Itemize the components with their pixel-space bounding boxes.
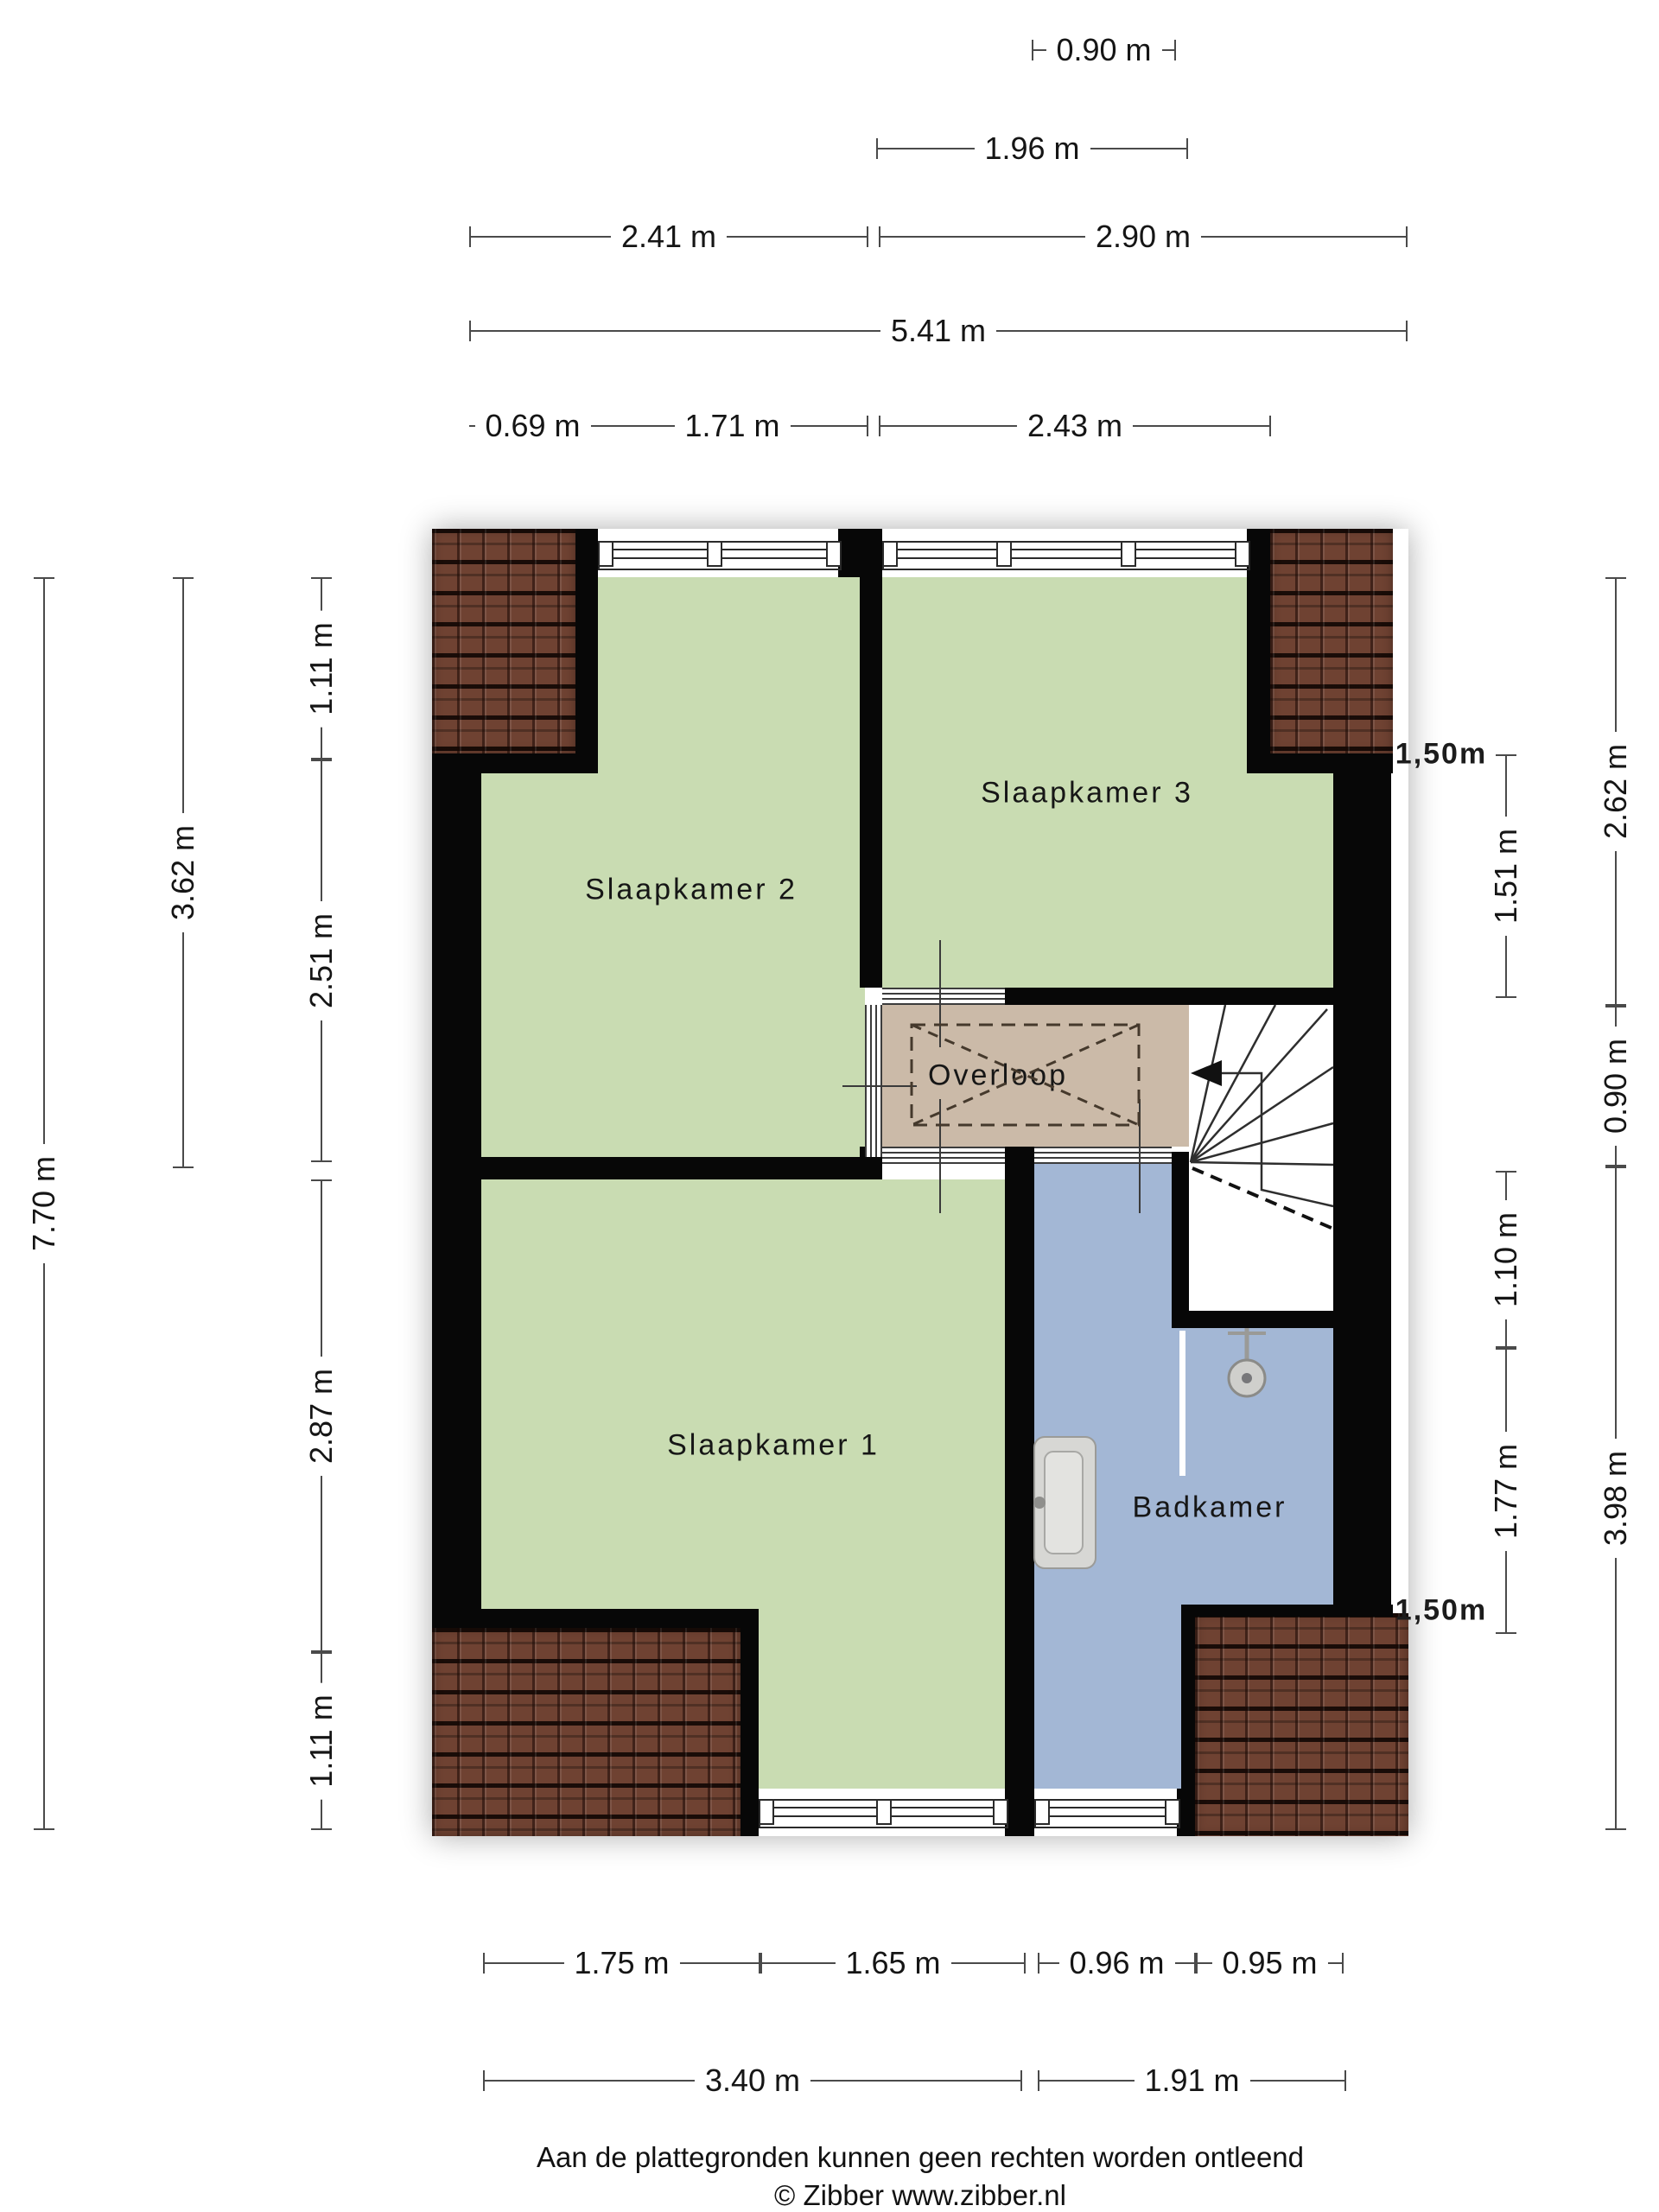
wall-segment [741,1609,759,1836]
dimension-label: 1.91 m [1134,2061,1249,2101]
dimension-label: 1.10 m [1486,1199,1526,1319]
window-mullion [993,1799,1008,1825]
dimension-label: 1.77 m [1486,1431,1526,1550]
wall-segment [432,1609,759,1628]
dimension-tick [1496,754,1516,756]
dimension-tick [1020,2070,1022,2091]
dimension-horizontal: 2.90 m [879,236,1408,238]
dimension-tick [173,577,194,579]
dimension-label: 2.62 m [1596,732,1636,851]
door-tick [1139,1099,1141,1213]
dimension-tick [1496,1171,1516,1173]
room-label-slaapkamer-2: Slaapkamer 2 [585,874,798,907]
dimension-tick [1406,321,1408,341]
wall-segment [1247,529,1270,773]
room-badkamer [1034,1328,1333,1613]
dimension-label: 1.71 m [674,406,790,446]
dimension-label: 2.51 m [302,901,341,1020]
dimension-vertical: 1.51 m [1505,754,1507,998]
wall-segment [575,529,598,773]
dimension-label: 3.62 m [163,813,203,932]
dimension-tick [1496,1632,1516,1634]
dimension-label: 0.69 m [474,406,590,446]
wall-segment [1195,1605,1393,1617]
window-mullion [598,541,613,567]
dimension-label: 3.98 m [1596,1439,1636,1558]
dimension-horizontal: 2.43 m [879,425,1271,427]
window-mullion [1034,1799,1050,1825]
dimension-label: 2.43 m [1017,406,1133,446]
dimension-horizontal: 0.96 m [1038,1962,1196,1964]
dimension-tick [1269,416,1271,436]
dimension-label: 2.87 m [302,1356,341,1475]
room-trap [1189,1005,1333,1311]
dimension-tick [879,226,880,247]
window-icon [759,1799,1008,1828]
dimension-tick [34,577,54,579]
dimension-label: 0.90 m [1046,30,1161,70]
dimension-label: 1.51 m [1486,817,1526,936]
dimension-label: 1.96 m [974,129,1090,168]
roof-tiles [432,529,575,753]
dimension-tick [867,416,868,436]
dimension-tick [1406,226,1408,247]
wall-segment [838,529,882,577]
dimension-vertical: 2.51 m [321,760,322,1162]
floorplan-page: 0.90 m1.96 m2.41 m2.90 m5.41 m0.69 m1.71… [0,0,1659,2212]
dimension-label: 0.96 m [1058,1943,1174,1983]
dimension-tick [1605,1006,1626,1007]
dimension-horizontal: 0.90 m [1032,49,1176,51]
knee-wall-height-label: 1,50m [1395,738,1487,772]
dimension-vertical: 3.98 m [1615,1166,1617,1830]
door-tick [939,940,941,1047]
dimension-horizontal: 1.91 m [1038,2080,1346,2082]
wall-segment [481,1157,865,1179]
dimension-label: 0.95 m [1211,1943,1327,1983]
room-label-slaapkamer-1: Slaapkamer 1 [667,1429,880,1463]
dimension-label: 1.75 m [563,1943,679,1983]
door-opening [1034,1147,1172,1164]
dimension-tick [311,1179,332,1181]
dimension-vertical: 1.77 m [1505,1348,1507,1634]
dimension-tick [483,1953,485,1974]
dimension-label: 2.90 m [1085,217,1201,257]
room-label-overloop: Overloop [928,1059,1068,1093]
dimension-label: 0.90 m [1596,1027,1636,1146]
dimension-tick [1605,1828,1626,1830]
window-icon [882,541,1250,570]
dimension-label: 5.41 m [880,311,996,351]
dimension-tick [1496,1348,1516,1350]
dimension-tick [311,1160,332,1162]
dimension-horizontal: 3.40 m [483,2080,1022,2082]
dimension-tick [1038,1953,1039,1974]
window-mullion [759,1799,774,1825]
dimension-tick [311,1828,332,1830]
dimension-tick [311,760,332,761]
dimension-tick [1186,138,1188,159]
disclaimer-text: Aan de plattegronden kunnen geen rechten… [537,2141,1304,2174]
dimension-tick [173,1166,194,1168]
dimension-vertical: 1.11 m [321,1652,322,1830]
room-slaapkamer-1-dormer [759,1609,1005,1789]
dimension-label: 2.41 m [611,217,727,257]
window-mullion [1121,541,1136,567]
dimension-tick [469,226,471,247]
dimension-tick [1605,577,1626,579]
dimension-tick [1496,996,1516,998]
dimension-tick [1174,40,1176,60]
wall-segment [1005,1147,1034,1836]
roof-tiles [1195,1613,1408,1836]
dimension-label: 7.70 m [24,1144,64,1263]
room-slaapkamer-1 [481,1179,1005,1609]
dimension-vertical: 2.87 m [321,1179,322,1652]
dimension-tick [483,2070,485,2091]
dimension-label: 3.40 m [695,2061,810,2101]
roof-tiles [432,1628,741,1836]
dimension-tick [311,577,332,579]
dimension-tick [1605,1166,1626,1168]
dimension-label: 1.11 m [302,1682,341,1799]
dimension-tick [311,1652,332,1654]
window-mullion [1165,1799,1180,1825]
dimension-horizontal: 1.96 m [876,148,1188,149]
dimension-vertical: 1.11 m [321,577,322,760]
window-mullion [996,541,1012,567]
window-icon [598,541,842,570]
dimension-tick [1344,2070,1346,2091]
door-opening [882,1147,1005,1164]
window-icon [1034,1799,1180,1828]
dimension-vertical: 2.62 m [1615,577,1617,1006]
door-opening [865,1005,882,1157]
dimension-vertical: 7.70 m [43,577,45,1830]
wall-segment [1333,753,1391,1613]
door-tick [842,1085,917,1087]
dimension-horizontal: 1.65 m [760,1962,1026,1964]
dimension-label: 1.11 m [302,610,341,727]
dimension-tick [469,321,471,341]
door-tick [939,1099,941,1213]
dimension-tick [867,226,868,247]
knee-wall-height-label: 1,50m [1395,1594,1487,1628]
roof-tiles [1270,529,1393,753]
dimension-horizontal: 0.69 m [469,425,596,427]
dimension-tick [34,1828,54,1830]
wall-segment [1172,1311,1333,1328]
room-label-slaapkamer-3: Slaapkamer 3 [981,777,1193,810]
dimension-vertical: 1.10 m [1505,1171,1507,1348]
dimension-tick [1032,40,1033,60]
window-mullion [707,541,722,567]
dimension-vertical: 3.62 m [182,577,184,1168]
dimension-tick [879,416,880,436]
window-mullion [1235,541,1250,567]
window-mullion [882,541,898,567]
dimension-tick [1038,2070,1039,2091]
dimension-tick [1024,1953,1026,1974]
dimension-horizontal: 1.75 m [483,1962,760,1964]
wall-segment [1172,1152,1189,1328]
room-label-badkamer: Badkamer [1133,1491,1287,1525]
wall-segment [860,577,882,988]
dimension-tick [876,138,878,159]
dimension-horizontal: 1.71 m [596,425,868,427]
wall-segment [432,753,481,1628]
room-badkamer-dormer [1034,1613,1181,1789]
dimension-tick [760,1953,762,1974]
window-mullion [876,1799,892,1825]
dimension-label: 1.65 m [835,1943,950,1983]
door-opening [882,988,1005,1005]
dimension-tick [1342,1953,1344,1974]
dimension-tick [1196,1953,1198,1974]
room-badkamer-arm [1034,1162,1172,1328]
wall-segment [1005,988,1333,1005]
dimension-horizontal: 5.41 m [469,330,1408,332]
copyright-text: © Zibber www.zibber.nl [774,2179,1066,2212]
dimension-horizontal: 0.95 m [1196,1962,1344,1964]
dimension-horizontal: 2.41 m [469,236,868,238]
dimension-vertical: 0.90 m [1615,1006,1617,1166]
window-mullion [826,541,842,567]
